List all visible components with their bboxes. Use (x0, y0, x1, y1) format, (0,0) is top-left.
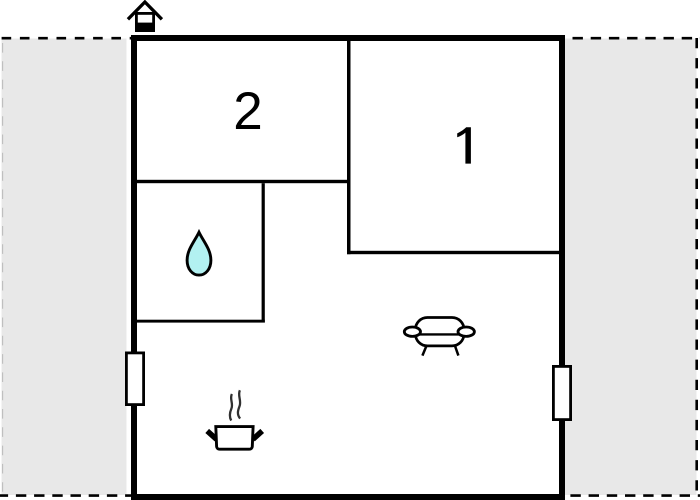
svg-text:2: 2 (233, 82, 262, 141)
